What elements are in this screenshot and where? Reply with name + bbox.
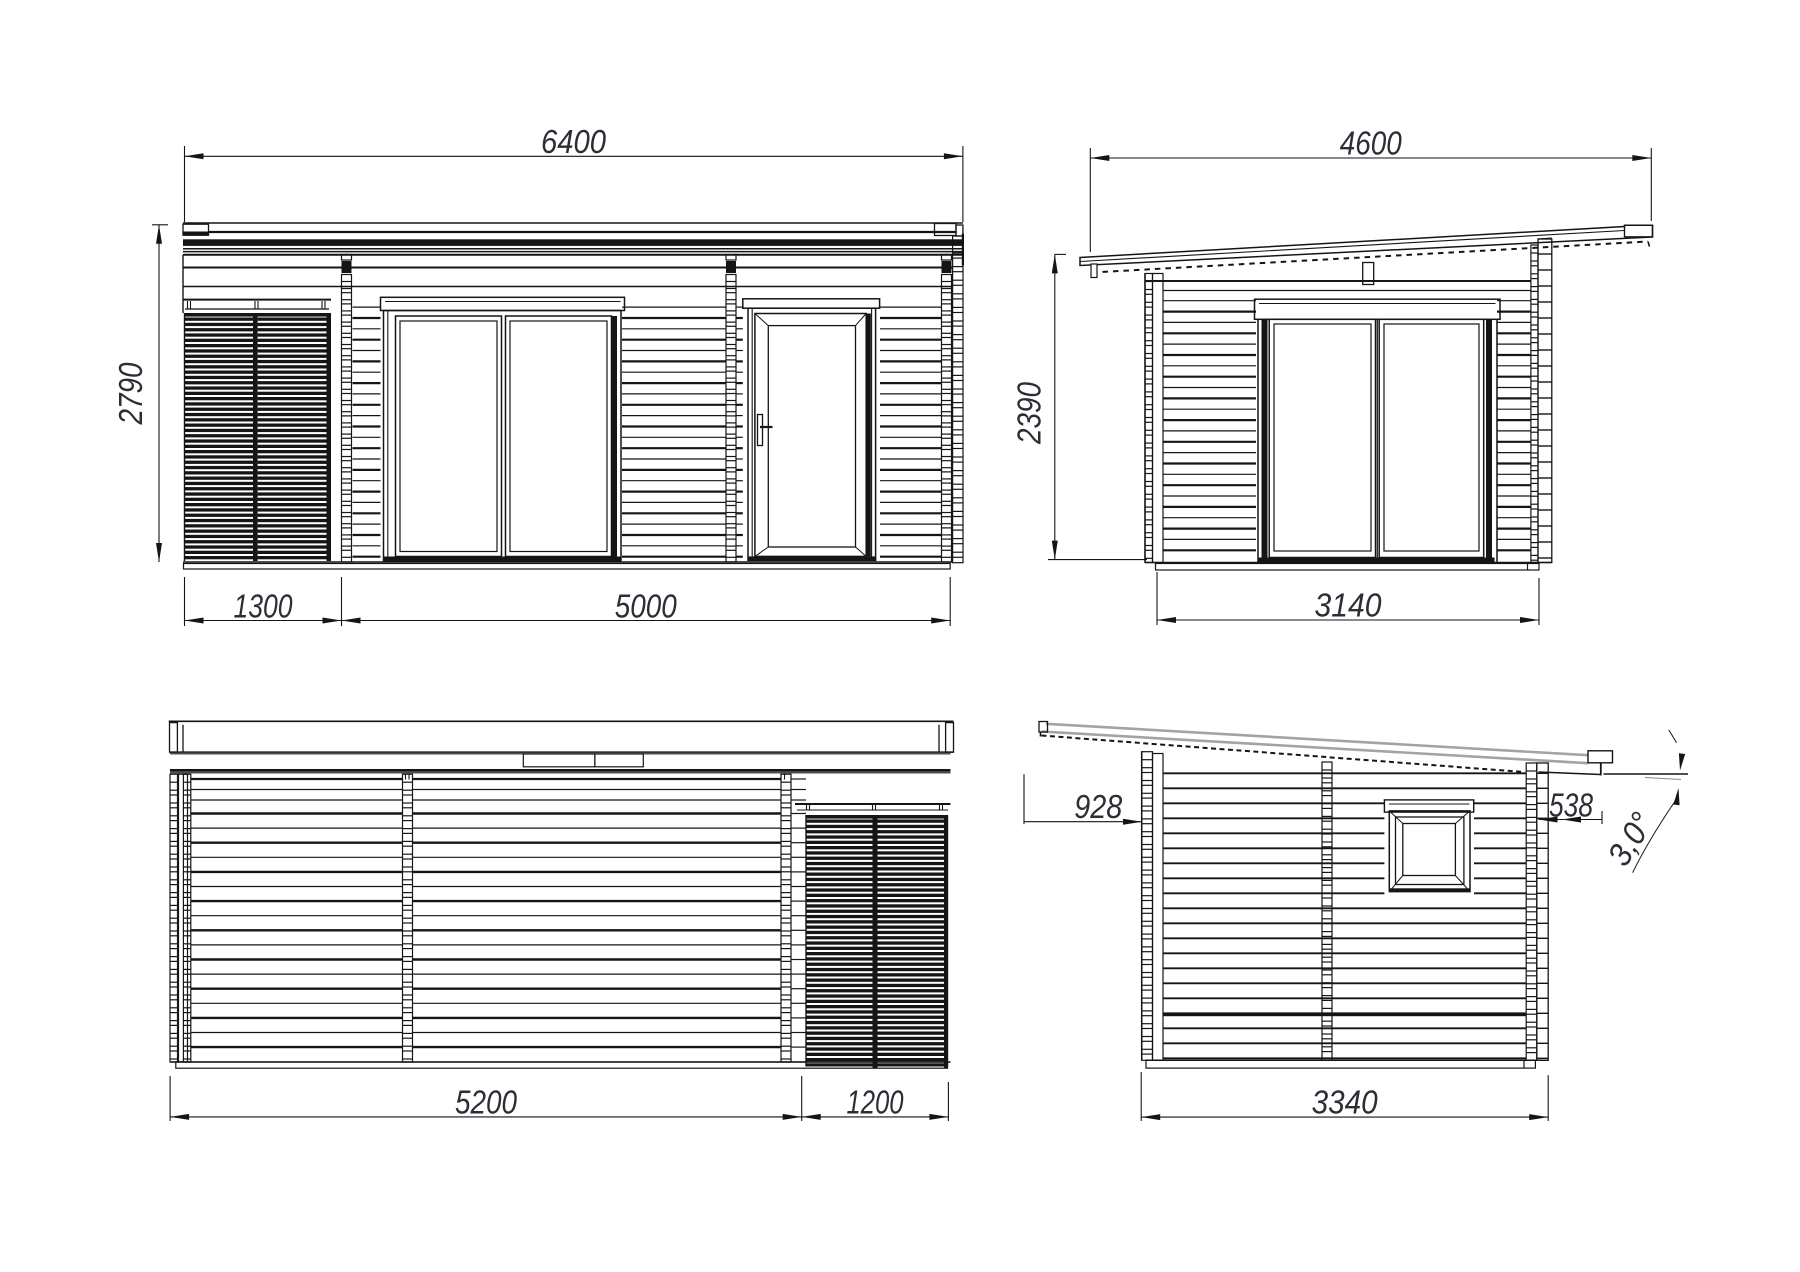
svg-text:3340: 3340: [1312, 1084, 1379, 1121]
svg-text:5200: 5200: [455, 1084, 518, 1121]
svg-text:5000: 5000: [615, 588, 678, 625]
svg-text:2790: 2790: [112, 362, 149, 425]
svg-text:3140: 3140: [1315, 587, 1383, 624]
svg-text:4600: 4600: [1340, 125, 1403, 162]
svg-text:1200: 1200: [847, 1084, 904, 1121]
svg-text:6400: 6400: [541, 123, 607, 160]
svg-text:2390: 2390: [1011, 381, 1048, 444]
svg-text:538: 538: [1549, 787, 1594, 824]
svg-text:928: 928: [1074, 788, 1123, 825]
svg-text:1300: 1300: [234, 588, 294, 625]
